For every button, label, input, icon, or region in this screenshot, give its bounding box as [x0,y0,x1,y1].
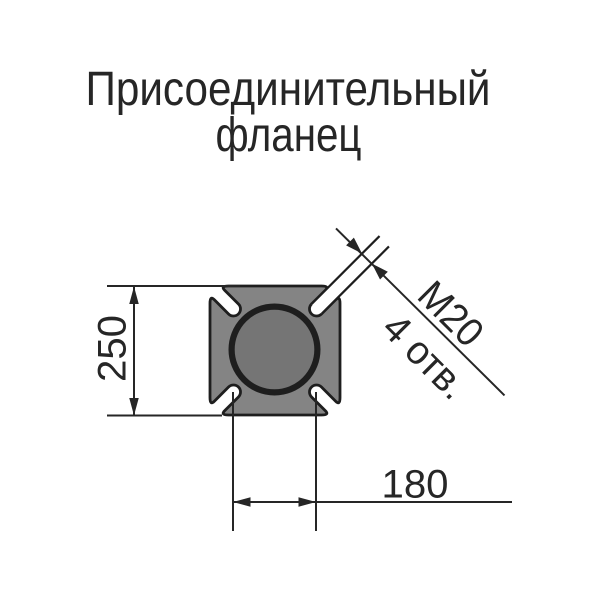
svg-text:180: 180 [382,463,449,507]
svg-text:250: 250 [91,315,135,382]
svg-text:Присоединительный: Присоединительный [86,63,491,116]
svg-text:фланец: фланец [216,109,362,162]
